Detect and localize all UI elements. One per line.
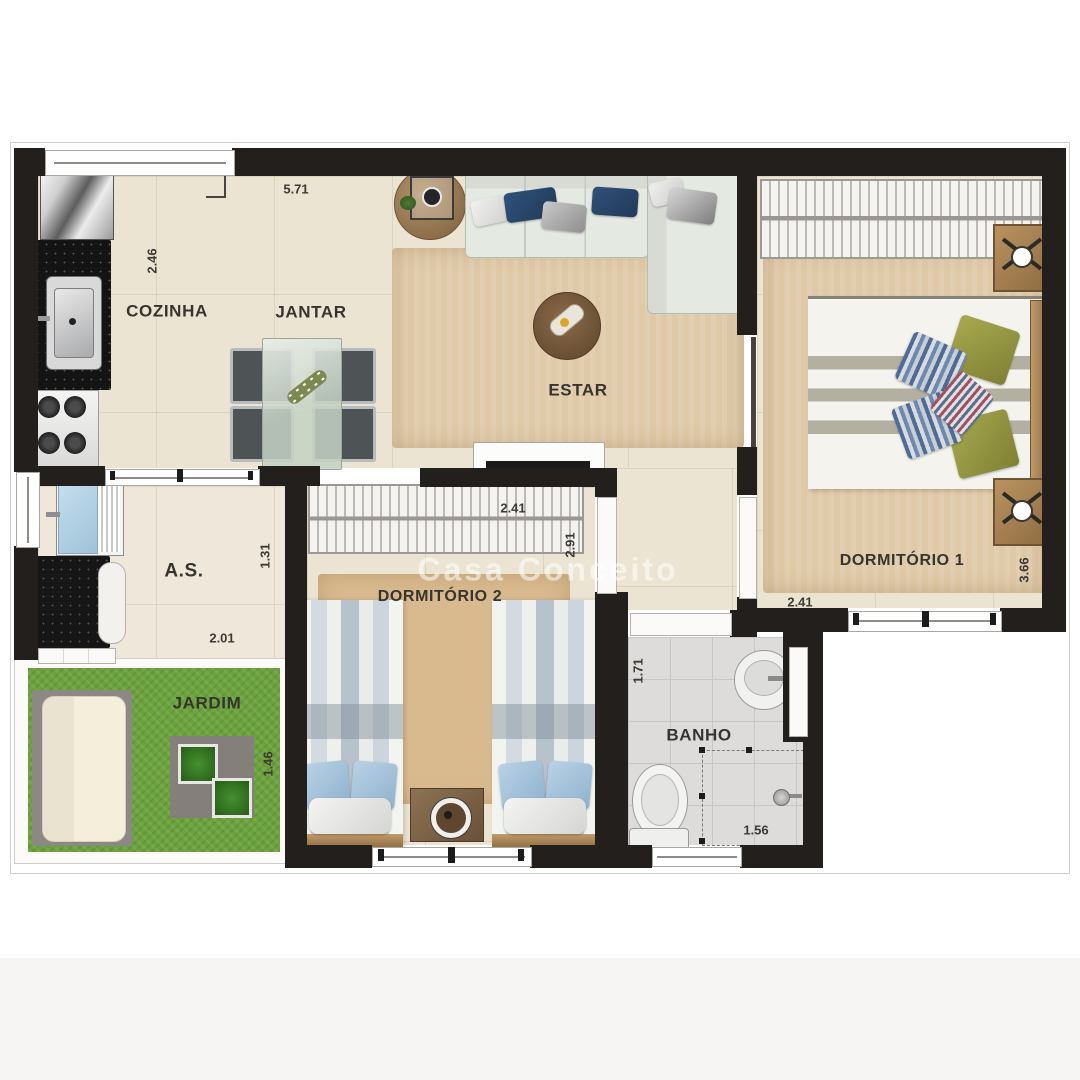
toilet-seat [641,774,679,826]
wall [595,592,628,868]
dim-area-servico-largura: 2.01 [209,632,234,645]
label-estar: ESTAR [548,382,607,399]
dim-cozinha-profundidade: 2.46 [146,248,159,273]
wall [595,468,617,497]
laundry-tank-basin [58,484,98,554]
dining-table [262,338,342,470]
shower-mark [699,793,705,799]
bedroom1-door [739,497,757,599]
label-cozinha: COZINHA [126,303,208,320]
wall [737,447,757,495]
wall [285,478,307,868]
tv [486,461,590,468]
wall [1042,176,1066,632]
label-dormitorio2: DORMITÓRIO 2 [378,589,503,605]
bedroom2-door [597,497,617,594]
stove-burner [64,432,86,454]
wall [1000,608,1066,632]
kitchen-faucet [36,316,50,321]
bedroom2-lamp [431,798,471,838]
service-window [16,472,40,548]
dim-dormitorio1-largura: 2.41 [787,596,812,609]
bathroom-niche [789,647,808,737]
side-table-plant [400,196,416,210]
shower-mark [699,838,705,844]
sofa-pillow-navy [591,186,639,217]
window-tick [518,849,524,861]
bedroom2-lamp-center [444,811,452,819]
dim-jardim-profundidade: 1.46 [262,751,275,776]
stove-burner [38,432,60,454]
shower-mark [746,747,752,753]
garden-planter [212,778,252,818]
floor-plan: COZINHA JANTAR ESTAR DORMITÓRIO 1 DORMIT… [0,0,1080,1080]
laundry-washboard [98,484,120,552]
laundry-basin [98,562,126,644]
wall [740,845,823,868]
bedroom1-door-leaf [751,337,756,447]
laundry-faucet [46,512,60,517]
wall [14,546,38,660]
sofa-pillow-gray [541,201,588,233]
wall [628,845,652,868]
door-tick [177,469,183,482]
tray-candle [560,318,569,327]
wall [530,845,597,868]
label-jantar: JANTAR [275,304,346,321]
wall [38,466,105,486]
door-swing-mark [224,176,226,198]
sofa-pillow-gray [666,187,718,225]
wall [737,176,757,335]
bed2-pillow-white [504,798,586,834]
page-bottom-band [0,958,1080,1080]
dim-banho-profundidade: 1.71 [632,658,645,683]
wall [14,148,45,176]
dim-dormitorio2-profundidade: 2.91 [564,532,577,557]
dim-banho-largura: 1.56 [743,824,768,837]
shower-mark [699,747,705,753]
dim-area-servico-profundidade: 1.31 [259,543,272,568]
sink-drain [69,318,76,325]
dim-sala-largura: 5.71 [283,183,308,196]
nightstand-lamp [1011,500,1033,522]
wall [730,610,757,637]
window-tick [378,849,384,861]
window-tick [990,613,996,625]
label-area-servico: A.S. [164,562,203,581]
nightstand-lamp [1011,246,1033,268]
wall [232,148,1066,176]
door-swing-mark [206,196,226,198]
stove-burner [64,396,86,418]
window-tick [922,611,929,627]
bed2-pillow-white [309,798,391,834]
door-tick [110,471,115,480]
wall [803,742,823,858]
wall [420,468,614,487]
stove-burner [38,396,60,418]
window-tick [448,847,455,863]
wall [14,176,38,472]
garden-sofa [42,696,126,842]
dim-dormitorio1-profundidade: 3.66 [1018,557,1031,582]
laundry-cabinet [38,648,116,664]
label-dormitorio1: DORMITÓRIO 1 [840,553,965,569]
bathroom-window [652,847,742,867]
wall [285,845,372,868]
label-banho: BANHO [666,727,731,744]
window-tick [853,613,859,625]
shower-head [773,789,790,806]
side-table-clock [422,187,442,207]
label-jardim: JARDIM [173,695,242,712]
bedroom2-wardrobe [308,484,584,554]
wall [757,608,848,632]
dim-dormitorio2-largura: 2.41 [500,502,525,515]
door-tick [248,471,253,480]
floor-hallway [614,468,737,610]
entrance-opening [45,150,235,176]
bathroom-door [630,613,732,636]
